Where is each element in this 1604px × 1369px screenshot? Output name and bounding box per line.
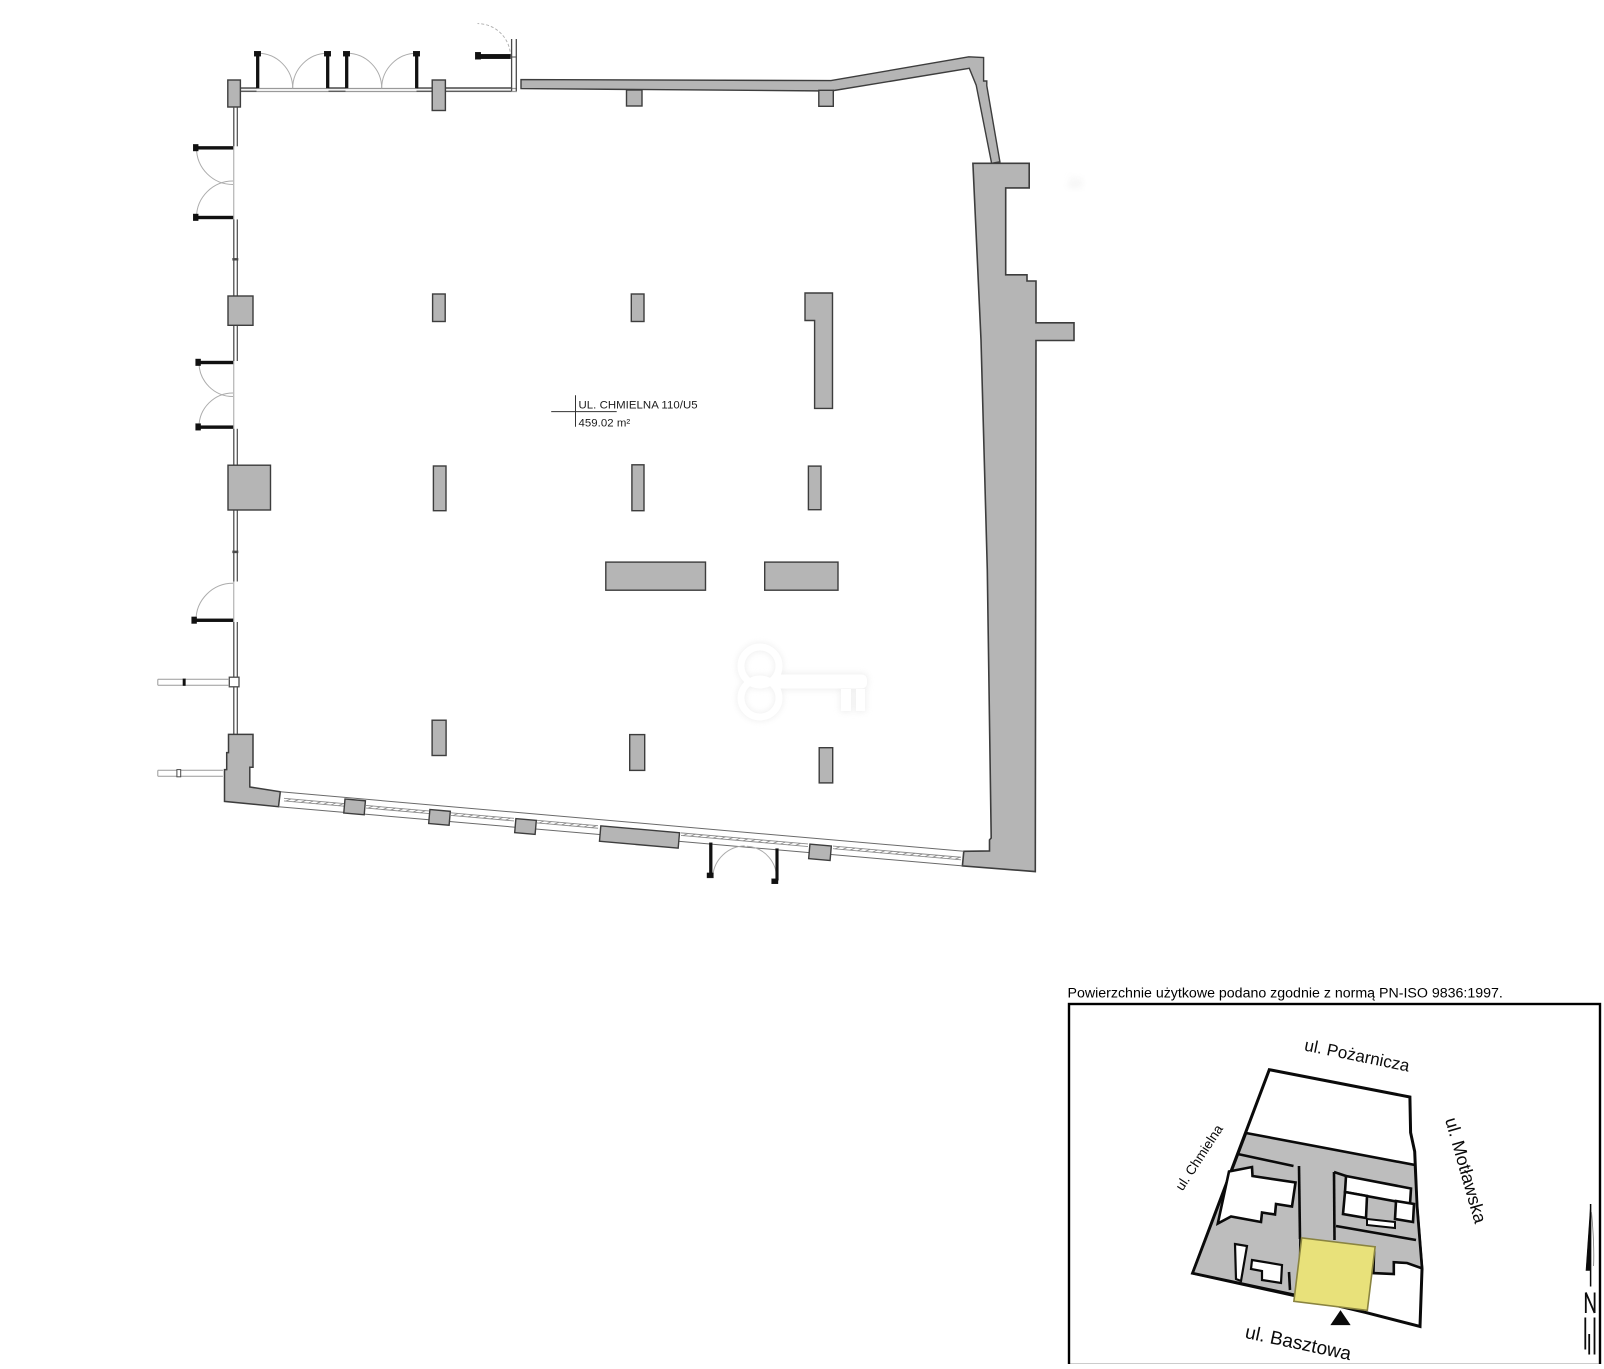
svg-text:UL. CHMIELNA 110/U5: UL. CHMIELNA 110/U5 [579, 399, 698, 411]
svg-text:Powierzchnie użytkowe podano z: Powierzchnie użytkowe podano zgodnie z n… [1068, 986, 1503, 1002]
svg-text:459.02 m²: 459.02 m² [579, 417, 631, 429]
